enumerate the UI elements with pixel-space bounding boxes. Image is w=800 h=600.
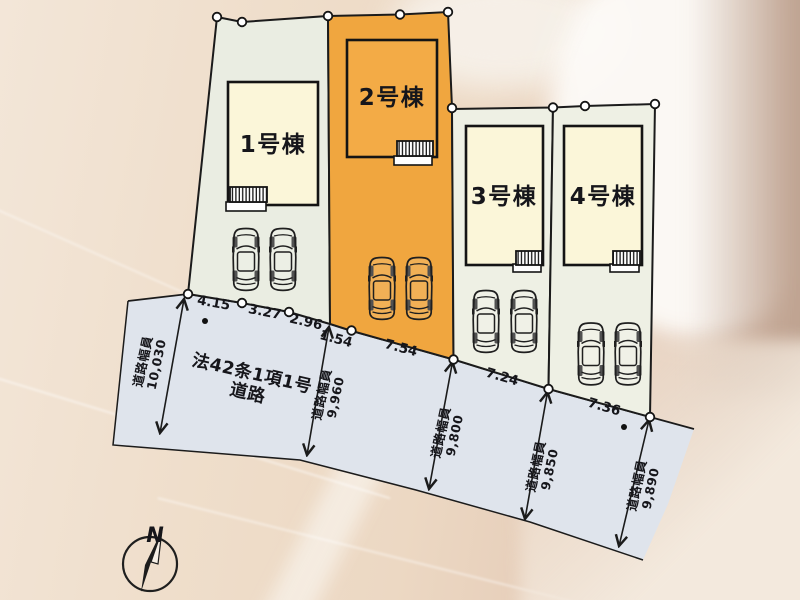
boundary-point xyxy=(324,12,333,21)
balcony-hatch xyxy=(613,251,640,265)
car-icon xyxy=(509,291,539,353)
north-compass: N xyxy=(123,523,177,592)
site-plan-screenshot: 1号棟 2号棟 3号棟 4号棟 xyxy=(0,0,800,600)
car-icon xyxy=(231,229,261,291)
boundary-point xyxy=(581,102,590,111)
boundary-point xyxy=(444,8,453,17)
boundary-point xyxy=(238,299,247,308)
building-2-label: 2号棟 xyxy=(359,85,426,111)
boundary-point xyxy=(396,10,405,19)
boundary-point xyxy=(285,308,294,317)
boundary-point xyxy=(544,385,553,394)
boundary-point xyxy=(184,290,193,299)
site-plan-canvas: 1号棟 2号棟 3号棟 4号棟 xyxy=(0,0,800,600)
boundary-point xyxy=(449,355,458,364)
balcony-hatch xyxy=(230,187,267,202)
building-4: 4号棟 xyxy=(564,126,642,272)
building-3: 3号棟 xyxy=(466,126,543,272)
building-1: 1号棟 xyxy=(226,82,318,211)
car-icon xyxy=(404,258,434,320)
car-icon xyxy=(471,291,501,353)
north-label: N xyxy=(146,523,164,547)
boundary-point xyxy=(238,18,247,27)
building-4-label: 4号棟 xyxy=(570,184,637,210)
car-icon xyxy=(576,323,606,385)
car-icon xyxy=(367,258,397,320)
building-3-label: 3号棟 xyxy=(471,184,538,210)
car-icon xyxy=(613,323,643,385)
balcony-hatch xyxy=(516,251,542,265)
balcony-rail xyxy=(226,202,266,211)
survey-nail xyxy=(202,318,208,324)
boundary-point xyxy=(651,100,660,109)
balcony-rail xyxy=(394,156,432,165)
boundary-point xyxy=(213,13,222,22)
boundary-point xyxy=(646,413,655,422)
boundary-point xyxy=(448,104,457,113)
building-2: 2号棟 xyxy=(347,40,437,165)
survey-nail xyxy=(621,424,627,430)
building-1-label: 1号棟 xyxy=(240,132,307,158)
balcony-hatch xyxy=(397,141,433,156)
boundary-point xyxy=(347,326,356,335)
boundary-point xyxy=(549,103,558,112)
car-icon xyxy=(268,229,298,291)
